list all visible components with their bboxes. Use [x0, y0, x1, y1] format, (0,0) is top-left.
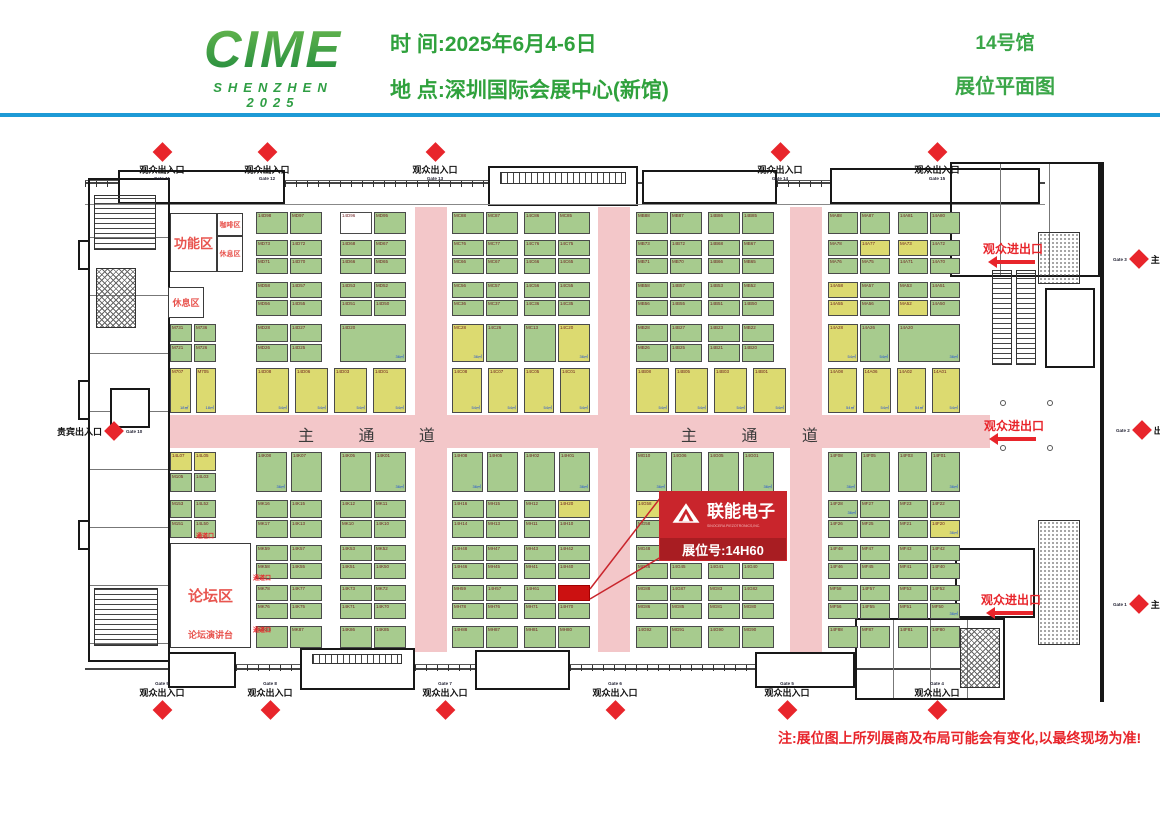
booth-cell: MD52	[374, 282, 406, 298]
entrance-label: 观众出入口	[914, 686, 959, 699]
booth-cell: 14B66	[708, 258, 740, 274]
zone-功能区: 功能区	[170, 213, 217, 272]
booth-cell: MC87	[486, 212, 518, 234]
booth-cell: 14F40	[930, 563, 960, 579]
booth-cell: 14C0854㎡	[452, 368, 482, 413]
zone-论坛区: 论坛区论坛演讲台	[170, 543, 251, 648]
disclaimer-note: 注:展位图上所列展商及布局可能会有变化,以最终现场为准!	[778, 728, 1141, 748]
booth-cell: 14F48	[828, 545, 858, 561]
booth-cell: 14B25	[670, 344, 702, 362]
booth-block: 14K53MK5214K5114K50	[340, 545, 406, 579]
entrance-label: 观众出入口	[412, 163, 457, 176]
booth-cell: 14K0136㎡	[375, 452, 406, 492]
booth-block: MB7314B72MB71MB70	[636, 240, 702, 274]
booth-cell: 14L07	[170, 452, 192, 471]
booth-cell: 14F2836㎡	[828, 500, 858, 518]
booth-block: MH1214H20MH1114H10	[524, 500, 590, 538]
booth-cell: MC66	[452, 258, 484, 274]
booth-cell: MH81	[524, 626, 556, 648]
booth-cell: 14H42	[558, 545, 590, 561]
entrance-marker: 观众出入口Gate 15	[914, 145, 959, 181]
booth-cell: 14F0836㎡	[828, 452, 857, 492]
booth-block: 14F2836㎡MF2714F26MF25	[828, 500, 890, 538]
booth-cell: MC37	[486, 300, 518, 316]
booth-block: 14D68MD6714D66MD65	[340, 240, 406, 274]
visitor-flow-label: 观众进出口	[984, 417, 1044, 434]
booth-cell: 14H10	[558, 520, 590, 538]
booth-cell: MB88	[636, 212, 668, 234]
booth-cell: 14B20	[742, 344, 774, 362]
booth-block: 14D2036㎡	[340, 324, 406, 362]
header-divider	[0, 113, 1160, 117]
entrance-marker: Gate 5观众出入口	[764, 681, 809, 717]
entrance-label: 观众出入口	[764, 686, 809, 699]
booth-cell: 14K75	[290, 603, 322, 619]
right-rooms	[1045, 288, 1095, 368]
booth-cell: MC56	[452, 282, 484, 298]
booth-cell: MH11	[524, 520, 556, 538]
booth-cell: 14D57	[290, 282, 322, 298]
booth-cell: 14A0254㎡	[897, 368, 926, 413]
booth-cell: MH71	[524, 603, 556, 619]
booth-cell: MF23	[898, 500, 928, 518]
booth-cell: 14C75	[558, 240, 590, 256]
entrance-label: 观众出入口	[592, 686, 637, 699]
booth-cell: MB67	[742, 240, 774, 256]
booth-block: 14K12MK11MK1014K10	[340, 500, 406, 538]
inner-wall-top	[85, 204, 1045, 205]
entrance-label: 观众出入口	[139, 686, 184, 699]
entrance-marker: 观众出入口Gate 11	[139, 145, 184, 181]
booth-cell: 14G90	[708, 626, 740, 648]
column	[1000, 445, 1006, 451]
booth-block: 14C7614C7514C6614C65	[524, 240, 590, 274]
booth-block: 14A8114A80	[898, 212, 960, 234]
booth-cell: MF87	[860, 626, 890, 648]
entrance-diamond-icon	[425, 142, 445, 162]
booth-cell: MK59	[256, 545, 288, 561]
booth-cell: 14H57	[486, 585, 518, 601]
visitor-flow-marker: 观众进出口	[984, 417, 1044, 441]
booth-cell: 14H14	[452, 520, 484, 538]
booth-cell: MG46	[636, 563, 668, 579]
entrance-label: 观众出入口	[422, 686, 467, 699]
main-aisle-label: 主 通 道	[298, 422, 455, 446]
booth-cell: MA87	[860, 212, 890, 234]
booth-block: 14D98MD97	[256, 212, 322, 234]
entrance-marker: Gate 4观众出入口	[914, 681, 959, 717]
booth-cell: 14K70	[374, 603, 406, 619]
booth-cell: 14B72	[670, 240, 702, 256]
entrance-label: 观众出入口	[247, 686, 292, 699]
booth-cell: 14D51	[340, 300, 372, 316]
booth-cell: 14D2036㎡	[340, 324, 406, 362]
booth-cell: MC2836㎡	[452, 324, 484, 362]
booth-block: 14K8614K85	[340, 626, 406, 648]
entrance-diamond-icon	[777, 700, 797, 720]
visitor-flow-label: 观众进出口	[983, 240, 1043, 257]
column	[1047, 445, 1053, 451]
booth-cell: MB87	[670, 212, 702, 234]
booth-block: MH5914H57MH78MH76	[452, 585, 518, 619]
gate-label: Gate 14	[772, 176, 788, 181]
entrance-diamond-icon	[927, 142, 947, 162]
booth-cell: MH80	[558, 626, 590, 648]
booth-cell: MD26	[256, 344, 288, 362]
booth-cell: M70718㎡	[170, 368, 191, 413]
entrance-diamond-icon	[1129, 249, 1149, 269]
booth-cell: MH13	[486, 520, 518, 538]
booth-cell: M70518㎡	[196, 368, 217, 413]
exhibitor-name: 联能电子	[707, 502, 775, 521]
booth-cell: MA53	[898, 282, 928, 298]
booth-block: 14A0854㎡14A0654㎡14A0254㎡14A0154㎡	[828, 368, 960, 413]
booth-block: 14G0514G0136㎡	[708, 452, 774, 492]
entrance-marker: Gate 2出入口	[1116, 423, 1160, 437]
booth-cell: 14H61	[524, 585, 556, 601]
booth-cell: M731	[170, 324, 192, 342]
booth-cell: MD73	[256, 240, 288, 256]
booth-cell: 14D96	[340, 212, 372, 234]
booth-cell: 14D66	[340, 258, 372, 274]
booth-cell: 14A0154㎡	[932, 368, 961, 413]
booth-cell: 14A58	[828, 282, 858, 298]
entrance-label: 观众出入口	[139, 163, 184, 176]
booth-cell: 14G92	[636, 626, 668, 648]
booth-cell: 14C86	[524, 212, 556, 234]
booth-cell: MB71	[636, 258, 668, 274]
booth-cell: MK11	[374, 500, 406, 518]
booth-cell: 14L52	[194, 500, 216, 518]
booth-block: MD2814D27MD2614D25	[256, 324, 322, 362]
booth-cell: 14C0554㎡	[524, 368, 554, 413]
zone-label: 咖啡区	[220, 220, 241, 230]
booth-cell: 14H05	[487, 452, 518, 492]
top-doors	[777, 180, 830, 187]
booth-cell: 14G05	[708, 452, 739, 492]
entrance-diamond-icon	[152, 700, 172, 720]
booth-cell: 14D0654㎡	[295, 368, 328, 413]
booth-cell: 14K13	[290, 520, 322, 538]
entrance-diamond-icon	[104, 421, 124, 441]
booth-cell: 14B23	[708, 324, 740, 342]
booth-cell: 14B55	[670, 300, 702, 316]
booth-cell: MH59	[452, 585, 484, 601]
booth-block: 14C86MC85	[524, 212, 590, 234]
booth-cell: 14B51	[708, 300, 740, 316]
booth-cell: MB70	[670, 258, 702, 274]
entrance-marker: Gate 6观众出入口	[592, 681, 637, 717]
booth-cell: MF56	[828, 603, 858, 619]
booth-block: MA5314A51MA5214A50	[898, 282, 960, 316]
booth-block: MB2814B27MB2614B25	[636, 324, 702, 362]
booth-cell: MA76	[828, 258, 858, 274]
event-time: 时 间:2025年6月4-6日	[390, 28, 669, 58]
bottom-doors	[570, 664, 755, 671]
gate-label: Gate 15	[929, 176, 945, 181]
booth-cell: MG90	[742, 626, 774, 648]
gate-label: Gate 10	[126, 429, 142, 434]
booth-block: 14A2854㎡14A2654㎡	[828, 324, 890, 362]
booth-block: MF5814F57MF5614F55	[828, 585, 890, 619]
cime-logo-subtitle: SHENZHEN 2025	[188, 80, 358, 110]
passage-label: 通道口	[253, 573, 271, 582]
booth-cell: 14K77	[290, 585, 322, 601]
gate-label: Gate 1	[1113, 602, 1127, 607]
floorplan: 主 通 道主 通 道 M731M736M721M726M70718㎡M70518…	[0, 118, 1160, 821]
entrance-marker: 观众出入口Gate 14	[757, 145, 802, 181]
left-elevator	[110, 388, 150, 428]
booth-cell: M721	[170, 344, 192, 362]
booth-cell: MF45	[860, 563, 890, 579]
booth-cell: 14D53	[340, 282, 372, 298]
booth-cell: MH87	[486, 626, 518, 648]
booth-cell: 14H40	[558, 563, 590, 579]
booth-cell: MK16	[256, 500, 288, 518]
booth-cell: 14K85	[374, 626, 406, 648]
booth-cell: MK52	[374, 545, 406, 561]
booth-cell: 14F88	[828, 626, 858, 648]
gate2-vestibule	[1038, 520, 1080, 645]
booth-cell: MG83	[708, 585, 740, 601]
entrance-diamond-icon	[260, 700, 280, 720]
booth-block: 14H16MH1514H14MH13	[452, 500, 518, 538]
booth-cell: 14K86	[340, 626, 372, 648]
booth-block: MG1036㎡14G06	[636, 452, 702, 492]
booth-cell: MA73	[898, 240, 928, 256]
booth-cell: MB65	[742, 258, 774, 274]
booth-cell: 14K71	[340, 603, 372, 619]
booth-cell: 14B57	[670, 282, 702, 298]
zone-休息区: 休息区	[168, 287, 204, 318]
booth-cell: MG85	[670, 603, 702, 619]
booth-block: MC1314C2036㎡	[524, 324, 590, 362]
booth-cell: 14C55	[558, 282, 590, 298]
top-doors	[285, 180, 488, 187]
entrance-marker: 贵宾出入口Gate 10	[57, 424, 142, 438]
booth-cell: 14A81	[898, 212, 928, 234]
booth-block: 14A58MA5714A55MA56	[828, 282, 890, 316]
booth-cell: 14D70	[290, 258, 322, 274]
booth-cell: MK87	[290, 626, 322, 648]
booth-cell: M726	[194, 344, 216, 362]
left-annex	[78, 380, 90, 420]
booth-cell: MF41	[898, 563, 928, 579]
booth-block: 14G90MG90	[708, 626, 774, 648]
aisle	[598, 207, 630, 652]
booth-cell: 14C56	[524, 282, 556, 298]
booth-cell: 14A2854㎡	[828, 324, 858, 362]
booth-cell: 14A0854㎡	[828, 368, 857, 413]
booth-cell: 14G87	[670, 585, 702, 601]
booth-cell: 14D50	[374, 300, 406, 316]
booth-cell: 14G82	[742, 585, 774, 601]
entrance-marker: 观众出入口Gate 12	[244, 145, 289, 181]
booth-block: MD7314D72MD7114D70	[256, 240, 322, 274]
exhibitor-booth-number: 展位号:14H60	[660, 538, 786, 560]
entrance-marker: Gate 3主入口	[1113, 252, 1160, 266]
booth-cell: MD65	[374, 258, 406, 274]
booth-cell: MB52	[742, 282, 774, 298]
booth-cell: MC88	[452, 212, 484, 234]
booth-cell: 14F05	[861, 452, 890, 492]
booth-cell: 14C2036㎡	[558, 324, 590, 362]
bottom-doors	[415, 664, 475, 671]
booth-cell: MH47	[486, 545, 518, 561]
entrance-label: 观众出入口	[244, 163, 289, 176]
booth-cell: MD97	[290, 212, 322, 234]
booth-block: MF5314F52MF51MF5036㎡	[898, 585, 960, 619]
booth-cell: MC85	[558, 212, 590, 234]
booth-block: MG8814G87MG86MG85	[636, 585, 702, 619]
bottom-pavilion	[475, 650, 570, 690]
booth-cell: MA57	[860, 282, 890, 298]
booth-cell: 14F52	[930, 585, 960, 601]
booth-cell: 14F03	[898, 452, 927, 492]
booth-cell: MH15	[486, 500, 518, 518]
booth-cell: 14F55	[860, 603, 890, 619]
booth-block: 14A2036㎡	[898, 324, 960, 362]
gate-label: Gate 13	[427, 176, 443, 181]
zone-label: 休息区	[220, 249, 241, 259]
visitor-flow-marker: 观众进出口	[981, 591, 1041, 615]
gate-label: Gate 11	[154, 176, 170, 181]
booth-block: MF2314F22MF2114F2036㎡	[898, 500, 960, 538]
booth-cell: MD95	[374, 212, 406, 234]
entrance-diamond-icon	[257, 142, 277, 162]
booth-cell: MC36	[452, 300, 484, 316]
booth-cell: MF53	[898, 585, 928, 601]
zone-label: 休息区	[172, 296, 199, 309]
booth-block: 14F8114F80	[898, 626, 960, 648]
booth-block: M70718㎡M70518㎡	[170, 368, 216, 413]
booth-block: MF4314F42MF4114F40	[898, 545, 960, 579]
column	[1000, 400, 1006, 406]
booth-cell: MB22	[742, 324, 774, 342]
entrance-diamond-icon	[927, 700, 947, 720]
booth-cell: MC57	[486, 282, 518, 298]
booth-cell: 14A55	[828, 300, 858, 316]
entrance-label: 观众出入口	[914, 163, 959, 176]
booth-cell: MB56	[636, 300, 668, 316]
entrance-diamond-icon	[1129, 594, 1149, 614]
booth-cell: 14A72	[930, 240, 960, 256]
booth-cell: 14F42	[930, 545, 960, 561]
left-stairs	[94, 588, 158, 646]
booth-cell: 14K50	[374, 563, 406, 579]
booth-cell: 14B27	[670, 324, 702, 342]
booth-block: MD5814D57MD5614D55	[256, 282, 322, 316]
booth-cell: 14K10	[374, 520, 406, 538]
aisle	[170, 415, 990, 448]
booth-cell: 14D0854㎡	[256, 368, 289, 413]
booth-block: MC2836㎡14C26	[452, 324, 518, 362]
bottom-pavilion-detail	[312, 654, 402, 664]
booth-cell: 14D27	[290, 324, 322, 342]
booth-cell: 14A80	[930, 212, 960, 234]
booth-cell: MA78	[828, 240, 858, 256]
booth-cell: 14D0354㎡	[334, 368, 367, 413]
booth-cell: 14G41	[708, 563, 740, 579]
exhibitor-callout-top: 联能电子 SINOCERA PIEZOTRONICS,INC.	[660, 492, 786, 538]
event-venue: 地 点:深圳国际会展中心(新馆)	[390, 74, 669, 104]
booth-cell: 14F80	[930, 626, 960, 648]
entrance-label: 观众出入口	[757, 163, 802, 176]
booth-block: 14C5614C5514C3614C35	[524, 282, 590, 316]
zone-label: 论坛区	[188, 585, 233, 606]
booth-block: 14G92MG91	[636, 626, 702, 648]
booth-block: 14B53MB5214B5114B50	[708, 282, 774, 316]
gate-label: Gate 12	[259, 176, 275, 181]
booth-cell: MB26	[636, 344, 668, 362]
booth-cell: 14B68	[708, 240, 740, 256]
booth-cell: 14C0154㎡	[560, 368, 590, 413]
booth-cell: 14K55	[290, 563, 322, 579]
zone-label: 功能区	[174, 233, 213, 252]
booth-cell: 14G40	[742, 563, 774, 579]
hall-title-block: 14号馆 展位平面图	[890, 28, 1120, 99]
booth-cell: 14H0136㎡	[559, 452, 590, 492]
booth-block: 14B8614B85	[708, 212, 774, 234]
booth-cell: MB73	[636, 240, 668, 256]
booth-block: 14D96MD95	[340, 212, 406, 234]
entrance-marker: 观众出入口Gate 13	[412, 145, 457, 181]
floorplan-page: CIME SHENZHEN 2025 时 间:2025年6月4-6日 地 点:深…	[0, 0, 1160, 821]
booth-cell: MG91	[670, 626, 702, 648]
booth-cell: 14A2036㎡	[898, 324, 960, 362]
booth-cell: MD56	[256, 300, 288, 316]
booth-block: 14H88MH87	[452, 626, 518, 648]
booth-cell: 14K73	[340, 585, 372, 601]
booth-cell: MF27	[860, 500, 890, 518]
entrance-marker: Gate 7观众出入口	[422, 681, 467, 717]
highlighted-booth	[558, 585, 590, 601]
booth-cell: MB58	[636, 282, 668, 298]
booth-block: MH81MH80	[524, 626, 590, 648]
booth-cell: 14A51	[930, 282, 960, 298]
booth-cell: 14B53	[708, 282, 740, 298]
booth-cell: 14K0836㎡	[256, 452, 287, 492]
booth-cell: 14A70	[930, 258, 960, 274]
booth-cell: 14K12	[340, 500, 372, 518]
right-outer-wall	[1100, 162, 1104, 702]
entrance-label: 贵宾出入口	[57, 425, 102, 438]
booth-cell: 14B0854㎡	[636, 368, 669, 413]
entrance-label: 主入口	[1151, 598, 1160, 611]
booth-cell: MH12	[524, 500, 556, 518]
booth-cell: MF58	[828, 585, 858, 601]
booth-cell: MA56	[860, 300, 890, 316]
booth-cell: MH45	[486, 563, 518, 579]
main-aisle-label: 主 通 道	[681, 422, 838, 446]
booth-cell: 14L03	[194, 473, 216, 492]
booth-cell: 14C35	[558, 300, 590, 316]
booth-block: 14C0854㎡14C0754㎡14C0554㎡14C0154㎡	[452, 368, 590, 413]
booth-cell: 14A71	[898, 258, 928, 274]
exhibitor-name-en: SINOCERA PIEZOTRONICS,INC.	[707, 524, 775, 528]
booth-block: MB5814B57MB5614B55	[636, 282, 702, 316]
bottom-right-stairs	[960, 628, 1000, 688]
visitor-flow-marker: 观众进出口	[983, 240, 1043, 264]
booth-cell: MH43	[524, 545, 556, 561]
top-pavilion-detail	[500, 172, 626, 184]
booth-cell: 14A50	[930, 300, 960, 316]
booth-cell: MG1036㎡	[636, 452, 667, 492]
booth-block: 14K0514K0136㎡	[340, 452, 406, 492]
booth-cell: 14B0354㎡	[714, 368, 747, 413]
booth-cell: 14F0136㎡	[931, 452, 960, 492]
booth-block: 14D53MD5214D5114D50	[340, 282, 406, 316]
